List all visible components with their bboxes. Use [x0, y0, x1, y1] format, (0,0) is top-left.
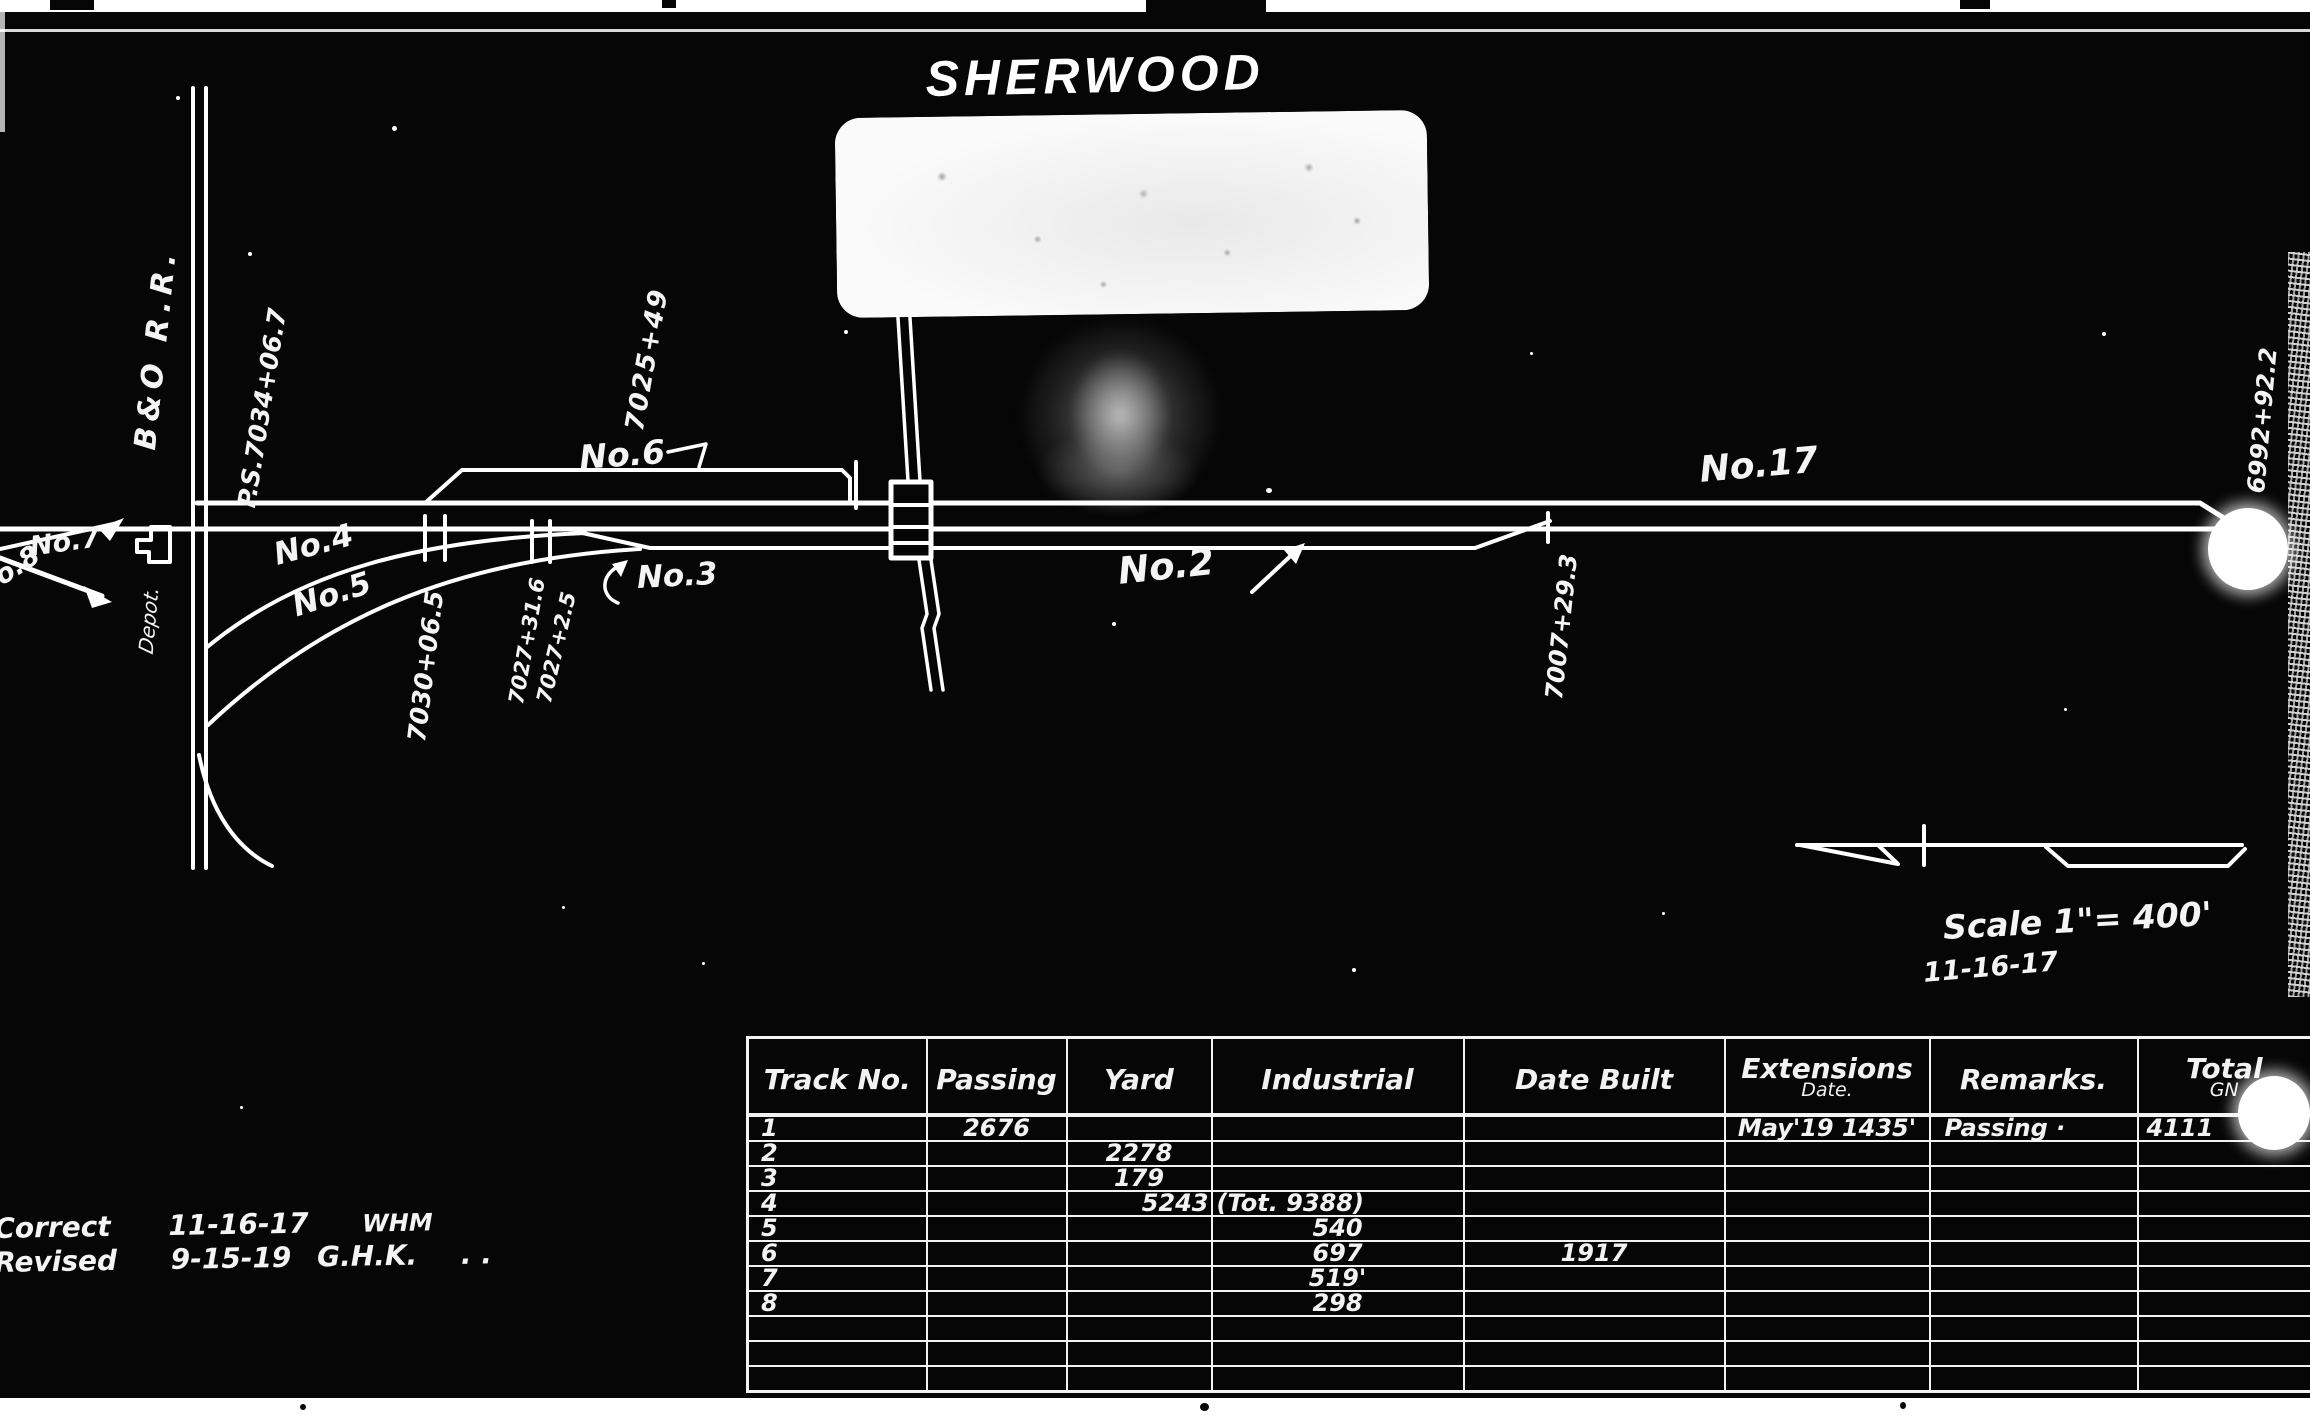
table-row: 5 540: [748, 1216, 2310, 1241]
track-data-table: Track No. Passing Yard Industrial Date B…: [746, 1036, 2310, 1393]
cell-industrial: 697: [1212, 1241, 1464, 1266]
cell-yard: [1067, 1341, 1212, 1366]
cell-track: [748, 1341, 927, 1366]
cell-industrial: [1212, 1141, 1464, 1166]
cell-passing: [927, 1291, 1067, 1316]
siding-no2: [578, 521, 1550, 548]
cell-industrial: [1212, 1166, 1464, 1191]
pasted-label-sticker: [835, 110, 1430, 318]
table-row: 6 697 1917: [748, 1241, 2310, 1266]
cell-track: 4: [748, 1191, 927, 1216]
scan-speck: [1200, 1403, 1209, 1411]
table-row: 3 179: [748, 1166, 2310, 1191]
noise-dot: [240, 1106, 243, 1109]
cell-remarks: [1930, 1341, 2138, 1366]
cell-total: [2138, 1316, 2310, 1341]
scan-notch: [662, 0, 676, 8]
cell-remarks: [1930, 1141, 2138, 1166]
cell-industrial: 519': [1212, 1266, 1464, 1291]
cell-track: 7: [748, 1266, 927, 1291]
cell-passing: [927, 1266, 1067, 1291]
noise-dot: [392, 126, 397, 131]
cell-extensions: [1725, 1166, 1930, 1191]
cell-industrial: (Tot. 9388): [1212, 1191, 1464, 1216]
cell-passing: [927, 1316, 1067, 1341]
cell-remarks: [1930, 1316, 2138, 1341]
noise-dot: [702, 962, 705, 965]
col-header-yard: Yard: [1067, 1038, 1212, 1116]
cell-total: [2138, 1341, 2310, 1366]
cell-date-built: [1464, 1191, 1725, 1216]
cell-extensions: May'19 1435': [1725, 1115, 1930, 1141]
cell-date-built: 1917: [1464, 1241, 1725, 1266]
scanned-track-chart: SHERWOOD No.6 No.17 No.2 No.3 No.4 No.5 …: [0, 0, 2310, 1415]
correct-note-initials: WHM: [362, 1208, 433, 1237]
table-row: 7 519': [748, 1266, 2310, 1291]
scan-notch: [50, 0, 94, 10]
revised-note-label: Revised: [0, 1244, 117, 1279]
scan-border-line: [0, 29, 2310, 32]
table-row: 2 2278: [748, 1141, 2310, 1166]
cell-remarks: [1930, 1166, 2138, 1191]
noise-dot: [1266, 488, 1272, 493]
hole-punch-lower: [2238, 1076, 2310, 1150]
cell-industrial: [1212, 1366, 1464, 1392]
cell-yard: [1067, 1115, 1212, 1141]
spur-no8-arrowhead: [84, 586, 112, 608]
cell-total: [2138, 1191, 2310, 1216]
correct-note-label: Correct: [0, 1210, 111, 1245]
cell-industrial: 540: [1212, 1216, 1464, 1241]
no6-label-arrow: [668, 444, 706, 467]
cell-extensions: [1725, 1241, 1930, 1266]
noise-dot: [1352, 968, 1356, 972]
cell-passing: [927, 1366, 1067, 1392]
cell-industrial: [1212, 1341, 1464, 1366]
noise-dot: [248, 252, 252, 256]
cell-passing: [927, 1241, 1067, 1266]
cell-extensions: [1725, 1191, 1930, 1216]
cell-passing: [927, 1166, 1067, 1191]
track-label-no6: No.6: [578, 432, 666, 477]
cell-yard: 5243: [1067, 1191, 1212, 1216]
noise-dot: [2102, 332, 2106, 336]
table-row: [748, 1341, 2310, 1366]
track-label-no3: No.3: [636, 556, 718, 596]
cell-yard: [1067, 1216, 1212, 1241]
col-header-extensions: ExtensionsDate.: [1725, 1038, 1930, 1116]
cell-total: [2138, 1291, 2310, 1316]
cell-track: 2: [748, 1141, 927, 1166]
scan-speck: [1900, 1402, 1906, 1409]
table-row: 4 5243 (Tot. 9388): [748, 1191, 2310, 1216]
cell-extensions: [1725, 1316, 1930, 1341]
cell-industrial: [1212, 1316, 1464, 1341]
cell-extensions: [1725, 1216, 1930, 1241]
cell-passing: 2676: [927, 1115, 1067, 1141]
cell-yard: [1067, 1266, 1212, 1291]
main-line-no17: [197, 503, 2243, 530]
scan-edge-bottom: [0, 1398, 2310, 1415]
scan-speck: [300, 1404, 306, 1410]
noise-dot: [1112, 622, 1116, 626]
cell-extensions: [1725, 1266, 1930, 1291]
col-header-industrial: Industrial: [1212, 1038, 1464, 1116]
road-crossing-lower-left: [919, 560, 931, 690]
table-header-row: Track No. Passing Yard Industrial Date B…: [748, 1038, 2310, 1116]
cell-yard: [1067, 1241, 1212, 1266]
table-row: 8 298: [748, 1291, 2310, 1316]
cell-track: [748, 1316, 927, 1341]
cell-industrial: [1212, 1115, 1464, 1141]
scan-notch: [1146, 0, 1266, 27]
correct-note-date: 11-16-17: [168, 1207, 309, 1242]
scan-edge-top: [0, 0, 2310, 12]
revised-note-date: 9-15-19: [170, 1241, 291, 1276]
revised-note-suffix: . .: [461, 1237, 493, 1271]
noise-dot: [176, 96, 180, 100]
cell-remarks: [1930, 1216, 2138, 1241]
cell-remarks: [1930, 1266, 2138, 1291]
wye-curve-tail: [199, 755, 272, 866]
cell-total: [2138, 1366, 2310, 1392]
cell-industrial: 298: [1212, 1291, 1464, 1316]
scan-notch: [1960, 0, 1990, 9]
cell-yard: 179: [1067, 1166, 1212, 1191]
hole-punch-upper: [2208, 508, 2288, 590]
cell-track: [748, 1366, 927, 1392]
north-arrow-pennant: [2046, 847, 2245, 866]
cell-date-built: [1464, 1341, 1725, 1366]
cell-remarks: [1930, 1366, 2138, 1392]
cell-track: 6: [748, 1241, 927, 1266]
cell-remarks: Passing ·: [1930, 1115, 2138, 1141]
cell-extensions: [1725, 1341, 1930, 1366]
scan-edge-right-noise: [2288, 252, 2310, 997]
noise-dot: [562, 906, 565, 909]
table-row: [748, 1366, 2310, 1392]
cell-yard: [1067, 1291, 1212, 1316]
cell-remarks: [1930, 1191, 2138, 1216]
cell-track: 8: [748, 1291, 927, 1316]
road-crossing-lower-right: [931, 560, 943, 690]
scan-edge-left: [0, 12, 5, 132]
noise-dot: [1530, 352, 1533, 355]
cell-total: [2138, 1216, 2310, 1241]
cell-extensions: [1725, 1141, 1930, 1166]
cell-track: 1: [748, 1115, 927, 1141]
cell-total: [2138, 1166, 2310, 1191]
cell-yard: [1067, 1366, 1212, 1392]
noise-dot: [2064, 708, 2067, 711]
col-header-track-no: Track No.: [748, 1038, 927, 1116]
cell-total: [2138, 1266, 2310, 1291]
road-crossing-upper-right: [910, 318, 920, 481]
cell-passing: [927, 1191, 1067, 1216]
cell-yard: [1067, 1316, 1212, 1341]
cell-total: [2138, 1241, 2310, 1266]
station-title: SHERWOOD: [925, 43, 1265, 108]
grade-crossing-box: [891, 482, 931, 558]
cell-track: 3: [748, 1166, 927, 1191]
cell-extensions: [1725, 1291, 1930, 1316]
cell-date-built: [1464, 1316, 1725, 1341]
cell-extensions: [1725, 1366, 1930, 1392]
noise-dot: [844, 330, 848, 334]
table-row: [748, 1316, 2310, 1341]
cell-remarks: [1930, 1291, 2138, 1316]
noise-dot: [1662, 912, 1665, 915]
road-crossing-upper-left: [898, 318, 908, 481]
cell-yard: 2278: [1067, 1141, 1212, 1166]
cell-passing: [927, 1341, 1067, 1366]
cell-passing: [927, 1216, 1067, 1241]
siding-no6: [425, 470, 850, 503]
cell-date-built: [1464, 1366, 1725, 1392]
cell-date-built: [1464, 1166, 1725, 1191]
revised-note-initials: G.H.K.: [317, 1239, 418, 1274]
cell-track: 5: [748, 1216, 927, 1241]
cell-remarks: [1930, 1241, 2138, 1266]
north-arrow-barb: [1800, 845, 1898, 864]
cell-date-built: [1464, 1115, 1725, 1141]
col-header-date-built: Date Built: [1464, 1038, 1725, 1116]
col-header-passing: Passing: [927, 1038, 1067, 1116]
col-header-remarks: Remarks.: [1930, 1038, 2138, 1116]
table-row: 1 2676 May'19 1435' Passing · 4111: [748, 1115, 2310, 1141]
cell-passing: [927, 1141, 1067, 1166]
cell-date-built: [1464, 1141, 1725, 1166]
cell-date-built: [1464, 1291, 1725, 1316]
depot-symbol: [137, 527, 170, 562]
cell-date-built: [1464, 1216, 1725, 1241]
cell-date-built: [1464, 1266, 1725, 1291]
